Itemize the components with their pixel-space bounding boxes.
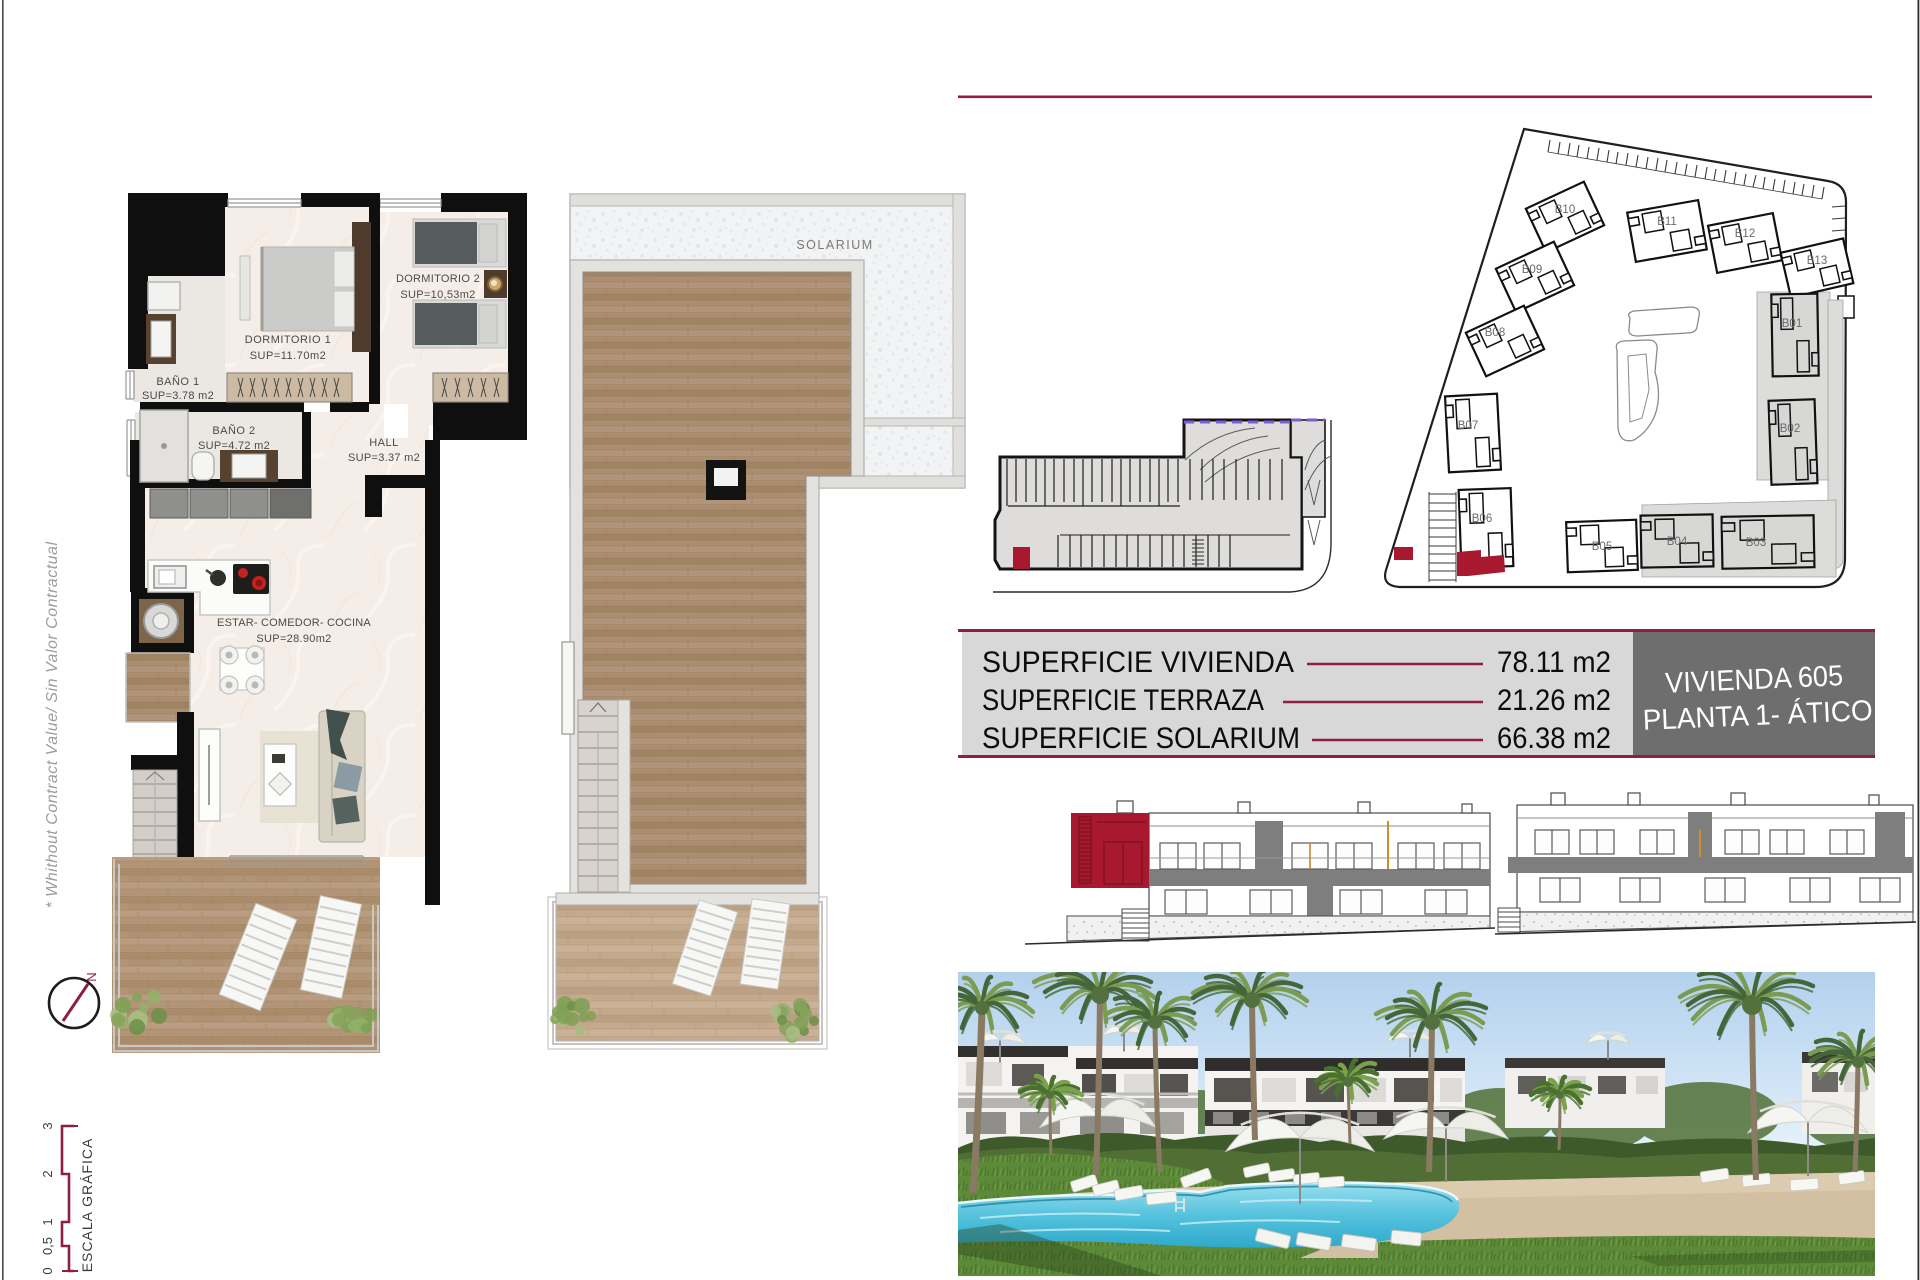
svg-text:SUP=11.70m2: SUP=11.70m2 (250, 350, 327, 362)
svg-text:21.26 m2: 21.26 m2 (1497, 684, 1611, 717)
svg-text:N: N (84, 972, 99, 981)
svg-text:BAÑO 1: BAÑO 1 (156, 375, 199, 388)
svg-text:ESTAR- COMEDOR- COCINA: ESTAR- COMEDOR- COCINA (217, 617, 371, 629)
svg-text:SUPERFICIE TERRAZA: SUPERFICIE TERRAZA (982, 684, 1264, 717)
svg-text:SUP=4.72 m2: SUP=4.72 m2 (198, 440, 270, 452)
svg-text:SUP=3.78 m2: SUP=3.78 m2 (142, 390, 214, 402)
svg-text:HALL: HALL (369, 437, 399, 449)
svg-text:B07: B07 (1458, 420, 1478, 432)
svg-text:3: 3 (40, 1122, 55, 1129)
svg-text:SUP=28.90m2: SUP=28.90m2 (256, 633, 331, 645)
svg-text:B04: B04 (1667, 536, 1688, 548)
svg-text:SUP=10,53m2: SUP=10,53m2 (400, 289, 475, 301)
svg-text:0,5: 0,5 (40, 1237, 55, 1255)
svg-text:B02: B02 (1780, 423, 1800, 435)
svg-text:BAÑO 2: BAÑO 2 (212, 424, 255, 437)
svg-text:SOLARIUM: SOLARIUM (796, 238, 873, 252)
svg-text:SUP=3.37 m2: SUP=3.37 m2 (348, 452, 420, 464)
svg-text:78.11 m2: 78.11 m2 (1497, 646, 1611, 679)
svg-text:B01: B01 (1782, 318, 1802, 330)
svg-text:2: 2 (40, 1170, 55, 1177)
svg-text:1: 1 (40, 1218, 55, 1225)
svg-text:B09: B09 (1522, 264, 1542, 276)
svg-text:B08: B08 (1485, 327, 1505, 339)
svg-text:B06: B06 (1472, 513, 1492, 525)
svg-text:SUPERFICIE SOLARIUM: SUPERFICIE SOLARIUM (982, 722, 1300, 755)
svg-text:DORMITORIO 1: DORMITORIO 1 (245, 334, 331, 346)
svg-text:B03: B03 (1746, 537, 1766, 549)
svg-text:B12: B12 (1735, 228, 1755, 240)
svg-text:66.38 m2: 66.38 m2 (1497, 722, 1611, 755)
svg-text:B05: B05 (1592, 541, 1612, 553)
svg-text:B13: B13 (1807, 255, 1827, 267)
svg-text:B10: B10 (1555, 204, 1575, 216)
svg-text:DORMITORIO 2: DORMITORIO 2 (396, 273, 480, 285)
svg-text:* Whithout Contract Value/ Sin: * Whithout Contract Value/ Sin Valor Con… (44, 542, 61, 909)
svg-text:B11: B11 (1657, 216, 1677, 228)
svg-text:0: 0 (40, 1267, 55, 1274)
svg-text:ESCALA GRÁFICA: ESCALA GRÁFICA (79, 1138, 95, 1273)
svg-text:SUPERFICIE VIVIENDA: SUPERFICIE VIVIENDA (982, 646, 1294, 679)
